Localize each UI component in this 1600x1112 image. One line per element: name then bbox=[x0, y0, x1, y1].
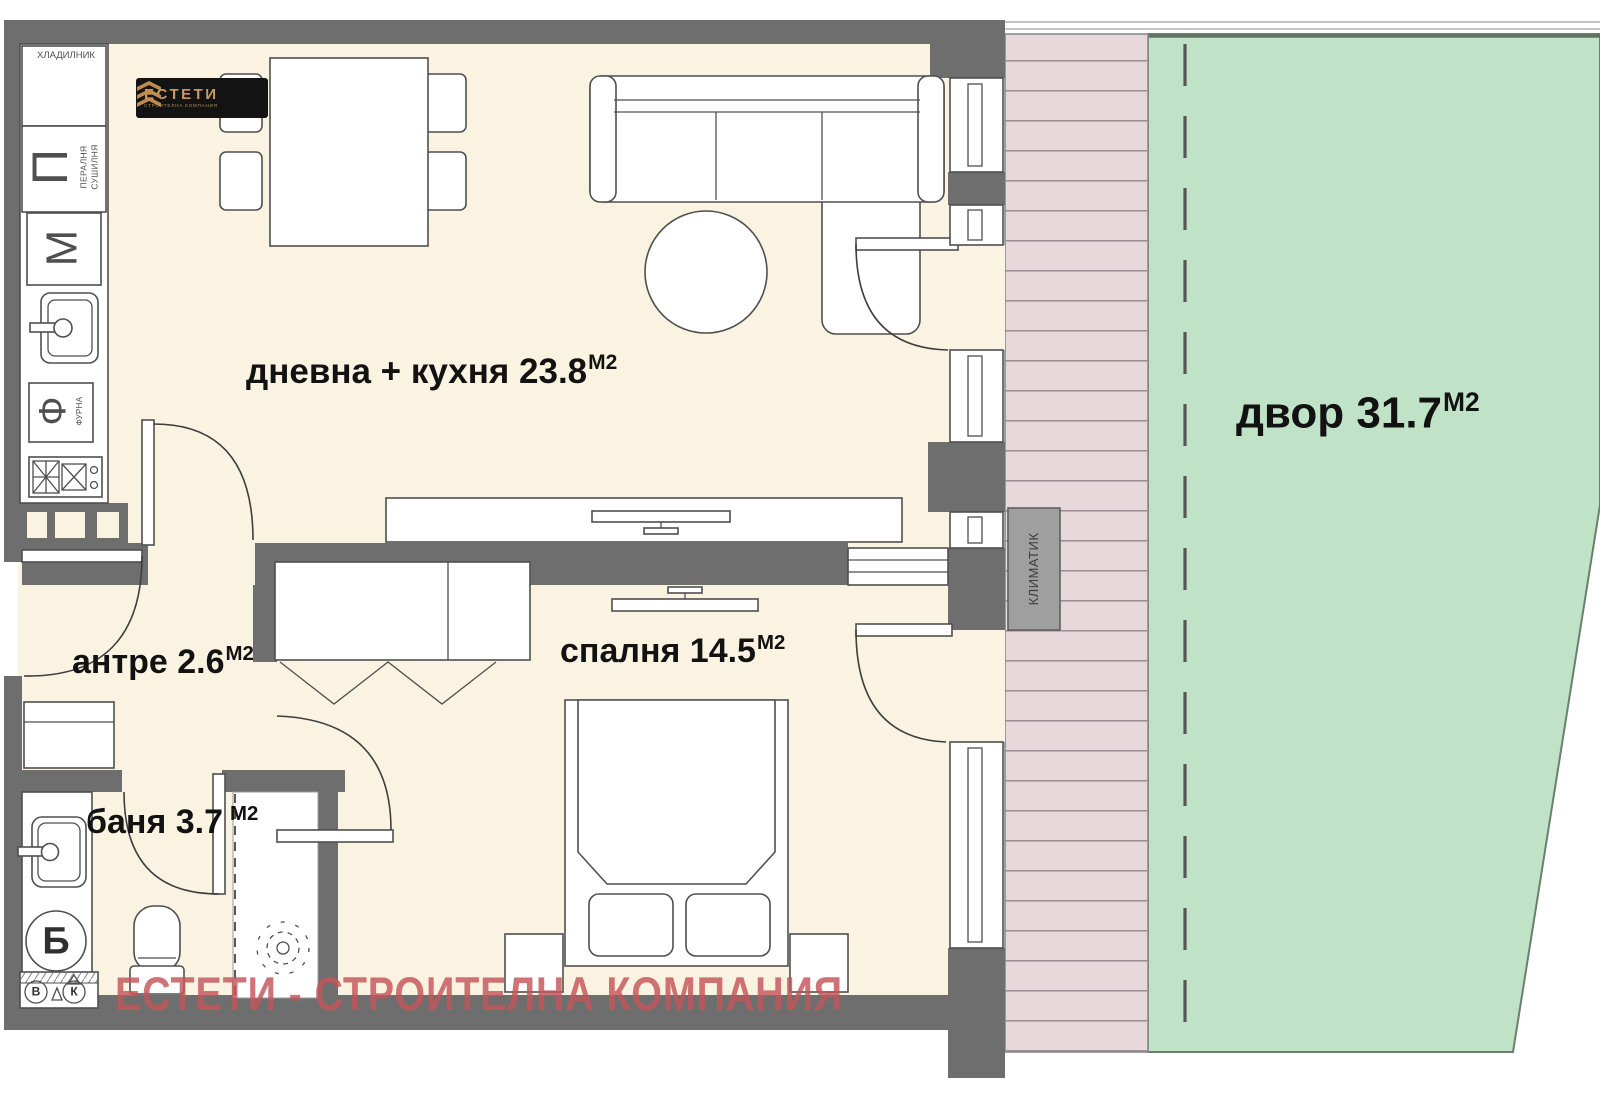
dining-table bbox=[270, 58, 428, 246]
kitchen-strip bbox=[20, 44, 108, 503]
washer-letter: П bbox=[19, 149, 82, 185]
cooktop bbox=[29, 457, 102, 497]
logo-icon bbox=[136, 78, 162, 108]
pillow bbox=[589, 894, 673, 956]
kitchen-sink bbox=[30, 293, 98, 363]
watermark: ЕСТЕТИ - СТРОИТЕЛНА КОМПАНИЯ bbox=[115, 966, 843, 1021]
room-label-hall: антре 2.6М2 bbox=[72, 643, 254, 682]
coffee-table bbox=[645, 211, 767, 333]
fixed-glazing-b bbox=[950, 512, 1003, 548]
room-label-living: дневна + кухня 23.8М2 bbox=[246, 352, 617, 392]
pillow bbox=[686, 894, 770, 956]
windows bbox=[950, 78, 1003, 948]
floor-plan-page: дневна + кухня 23.8М2 спалня 14.5М2 антр… bbox=[0, 0, 1600, 1112]
dishwasher-letter: М bbox=[35, 230, 90, 267]
valve-cold-label: К bbox=[70, 985, 77, 1000]
partition-sill bbox=[848, 548, 948, 585]
fridge-label: ХЛАДИЛНИК bbox=[24, 50, 108, 61]
boiler-letter: Б bbox=[42, 918, 69, 966]
hall-closet bbox=[24, 702, 114, 768]
bedroom-window bbox=[950, 742, 1003, 948]
tv-living bbox=[592, 511, 730, 522]
ac-label: КЛИМАТИК bbox=[1026, 533, 1042, 606]
valve-hot-label: В bbox=[32, 985, 41, 1000]
site-boundary bbox=[988, 22, 1600, 29]
floor-plan-svg bbox=[0, 0, 1600, 1112]
living-window bbox=[950, 78, 1003, 172]
yard-area bbox=[1148, 34, 1600, 1052]
room-label-bath: баня 3.7М2 bbox=[86, 803, 258, 842]
room-label-yard: двор 31.7М2 bbox=[1236, 388, 1480, 439]
fixed-glazing-a bbox=[950, 350, 1003, 442]
washer-label: ПЕРАЛНЯ СУШИЛНЯ bbox=[78, 144, 99, 189]
oven-letter: Ф bbox=[30, 397, 78, 426]
tv-console-living bbox=[386, 498, 902, 542]
room-label-bedroom: спалня 14.5М2 bbox=[560, 632, 785, 671]
company-logo: ЕСТЕТИ СТРОИТЕЛНА КОМПАНИЯ bbox=[136, 78, 268, 118]
sidelight-glazing bbox=[950, 205, 1003, 245]
oven-label: ФУРНА bbox=[75, 397, 85, 426]
bed bbox=[565, 700, 788, 966]
